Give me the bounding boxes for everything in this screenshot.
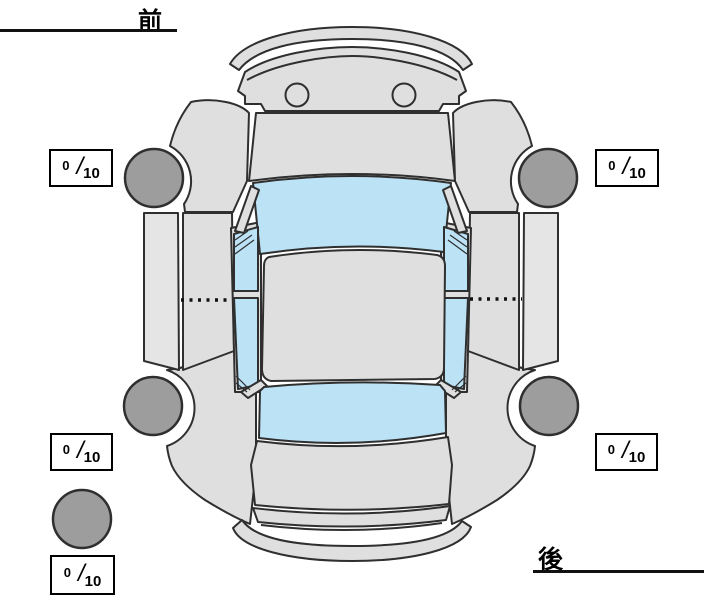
rear-window (259, 382, 446, 443)
tread-score-spare[interactable]: 0/10 (50, 555, 115, 595)
windshield (253, 176, 451, 254)
right-front-side-window (444, 227, 468, 291)
score-value: 0 (63, 442, 70, 457)
roof (262, 250, 445, 381)
left-door-panel (183, 213, 234, 370)
right-door-outer-sill (523, 213, 558, 370)
right-door-panel (468, 213, 519, 370)
spare-tire (53, 490, 111, 548)
left-rear-side-window (234, 298, 258, 389)
score-max: 10 (85, 573, 102, 590)
tread-score-rear-right[interactable]: 0/10 (595, 433, 658, 471)
score-separator: / (622, 155, 629, 179)
front-right-fender (453, 100, 532, 212)
hood (249, 113, 455, 181)
tread-score-rear-left[interactable]: 0/10 (50, 433, 113, 471)
score-max: 10 (83, 165, 100, 182)
score-max: 10 (629, 449, 646, 466)
score-max: 10 (629, 165, 646, 182)
headlamp-washer-left (286, 84, 309, 107)
car-top-view-svg (0, 0, 711, 600)
right-rear-side-window (444, 298, 468, 389)
score-separator: / (622, 439, 629, 463)
score-max: 10 (84, 449, 101, 466)
tread-score-front-right[interactable]: 0/10 (595, 149, 659, 187)
left-front-side-window (234, 227, 258, 291)
score-separator: / (76, 155, 83, 179)
front-left-tire (125, 149, 183, 207)
rear-right-tire (520, 377, 578, 435)
tread-score-front-left[interactable]: 0/10 (49, 149, 113, 187)
score-value: 0 (64, 565, 71, 580)
headlamp-washer-right (393, 84, 416, 107)
score-value: 0 (608, 158, 615, 173)
score-value: 0 (62, 158, 69, 173)
rear-underline (533, 570, 704, 573)
front-right-tire (519, 149, 577, 207)
score-value: 0 (608, 442, 615, 457)
trunk (251, 437, 452, 510)
score-separator: / (78, 562, 85, 586)
score-separator: / (77, 439, 84, 463)
front-underline (0, 29, 177, 32)
left-door-outer-sill (144, 213, 179, 370)
rear-left-tire (124, 377, 182, 435)
vehicle-condition-diagram: 前 後 0/10 0/10 0/10 0/10 0/10 (0, 0, 711, 600)
front-left-fender (170, 100, 249, 212)
